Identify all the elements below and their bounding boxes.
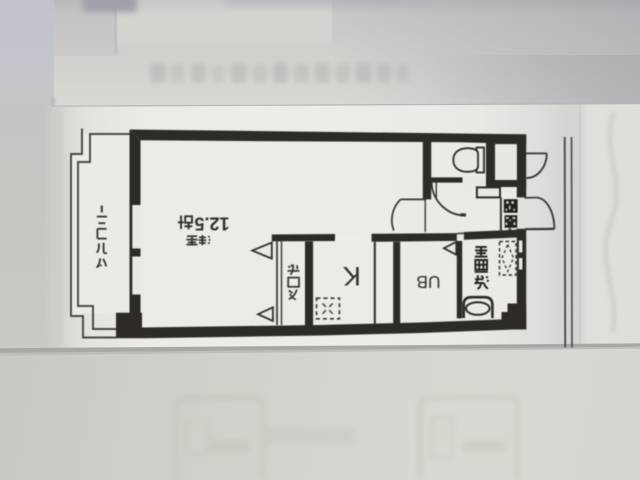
- svg-text:K: K: [343, 261, 361, 291]
- svg-text:UB: UB: [416, 272, 440, 292]
- svg-text:12.5: 12.5: [194, 213, 229, 233]
